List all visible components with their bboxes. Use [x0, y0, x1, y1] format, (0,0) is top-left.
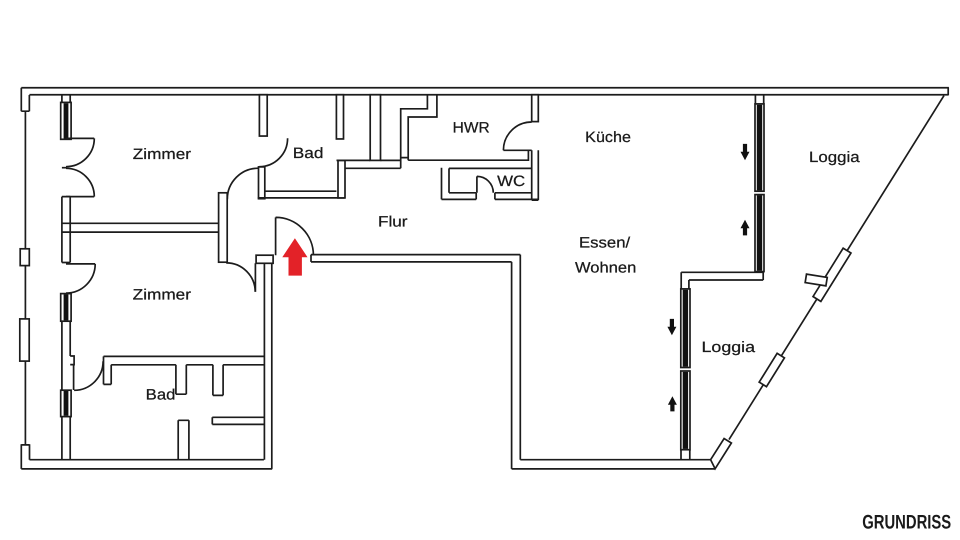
- svg-text:WC: WC: [497, 173, 525, 190]
- svg-text:GRUNDRISS: GRUNDRISS: [862, 511, 951, 533]
- svg-text:Zimmer: Zimmer: [133, 287, 191, 304]
- svg-text:Loggia: Loggia: [809, 149, 860, 166]
- svg-text:Loggia: Loggia: [702, 339, 756, 356]
- svg-text:Bad: Bad: [146, 386, 176, 403]
- svg-text:Bad: Bad: [293, 145, 324, 162]
- svg-text:Wohnen: Wohnen: [575, 260, 636, 277]
- svg-text:Flur: Flur: [378, 213, 408, 230]
- svg-text:Zimmer: Zimmer: [133, 146, 191, 163]
- svg-text:Küche: Küche: [585, 129, 631, 146]
- svg-text:Essen/: Essen/: [579, 234, 631, 251]
- svg-text:HWR: HWR: [453, 119, 490, 136]
